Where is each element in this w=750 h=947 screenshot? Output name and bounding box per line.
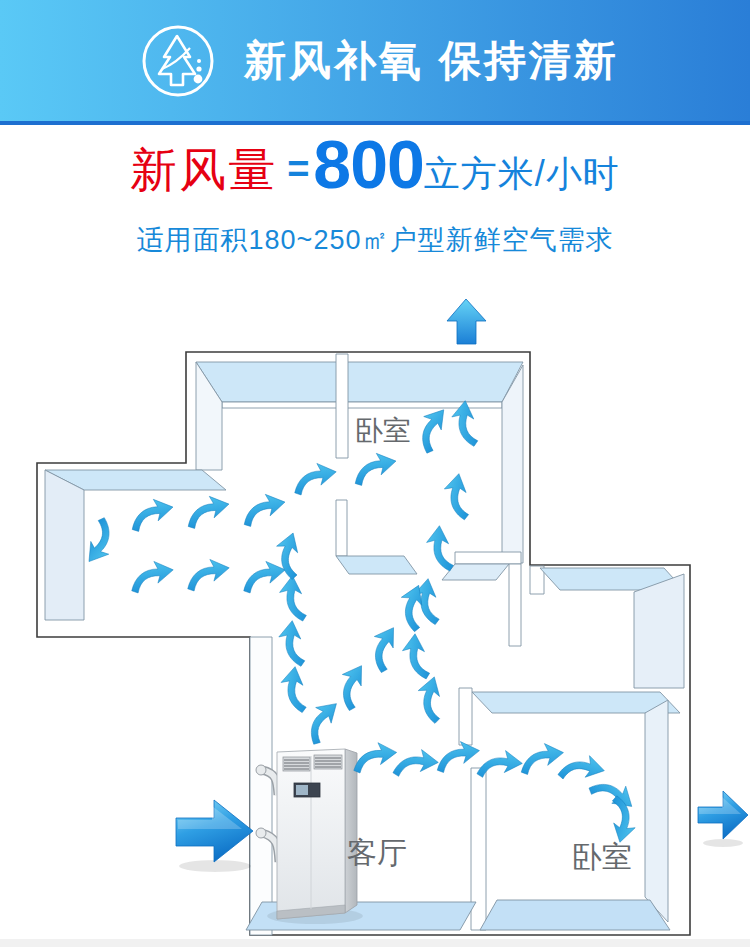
exit-arrow-top (447, 299, 486, 344)
intake-arrow-left (176, 800, 253, 872)
floorplan: 卧室 客厅 卧室 (0, 280, 750, 939)
room-label-living-room: 客厅 (347, 836, 407, 869)
header-title: 新风补氧 保持清新 (244, 33, 619, 89)
page: 新风补氧 保持清新 新风量=800立方米/小时 适用面积180~250㎡户型新鲜… (0, 0, 750, 947)
exhaust-arrow-right (698, 791, 748, 847)
headline-label: 新风量 (130, 143, 277, 196)
subtitle: 适用面积180~250㎡户型新鲜空气需求 (0, 222, 750, 258)
fresh-air-tree-icon (140, 23, 216, 99)
room-label-bedroom-right: 卧室 (572, 840, 632, 873)
headline: 新风量=800立方米/小时 (0, 126, 750, 206)
headline-unit: 立方米/小时 (424, 153, 620, 194)
unit-control-panel (294, 783, 320, 797)
headline-equals: = (287, 148, 309, 190)
header-banner: 新风补氧 保持清新 (0, 0, 750, 125)
headline-value: 800 (313, 126, 423, 202)
next-section-strip (0, 939, 750, 947)
room-label-bedroom-top: 卧室 (355, 415, 411, 446)
